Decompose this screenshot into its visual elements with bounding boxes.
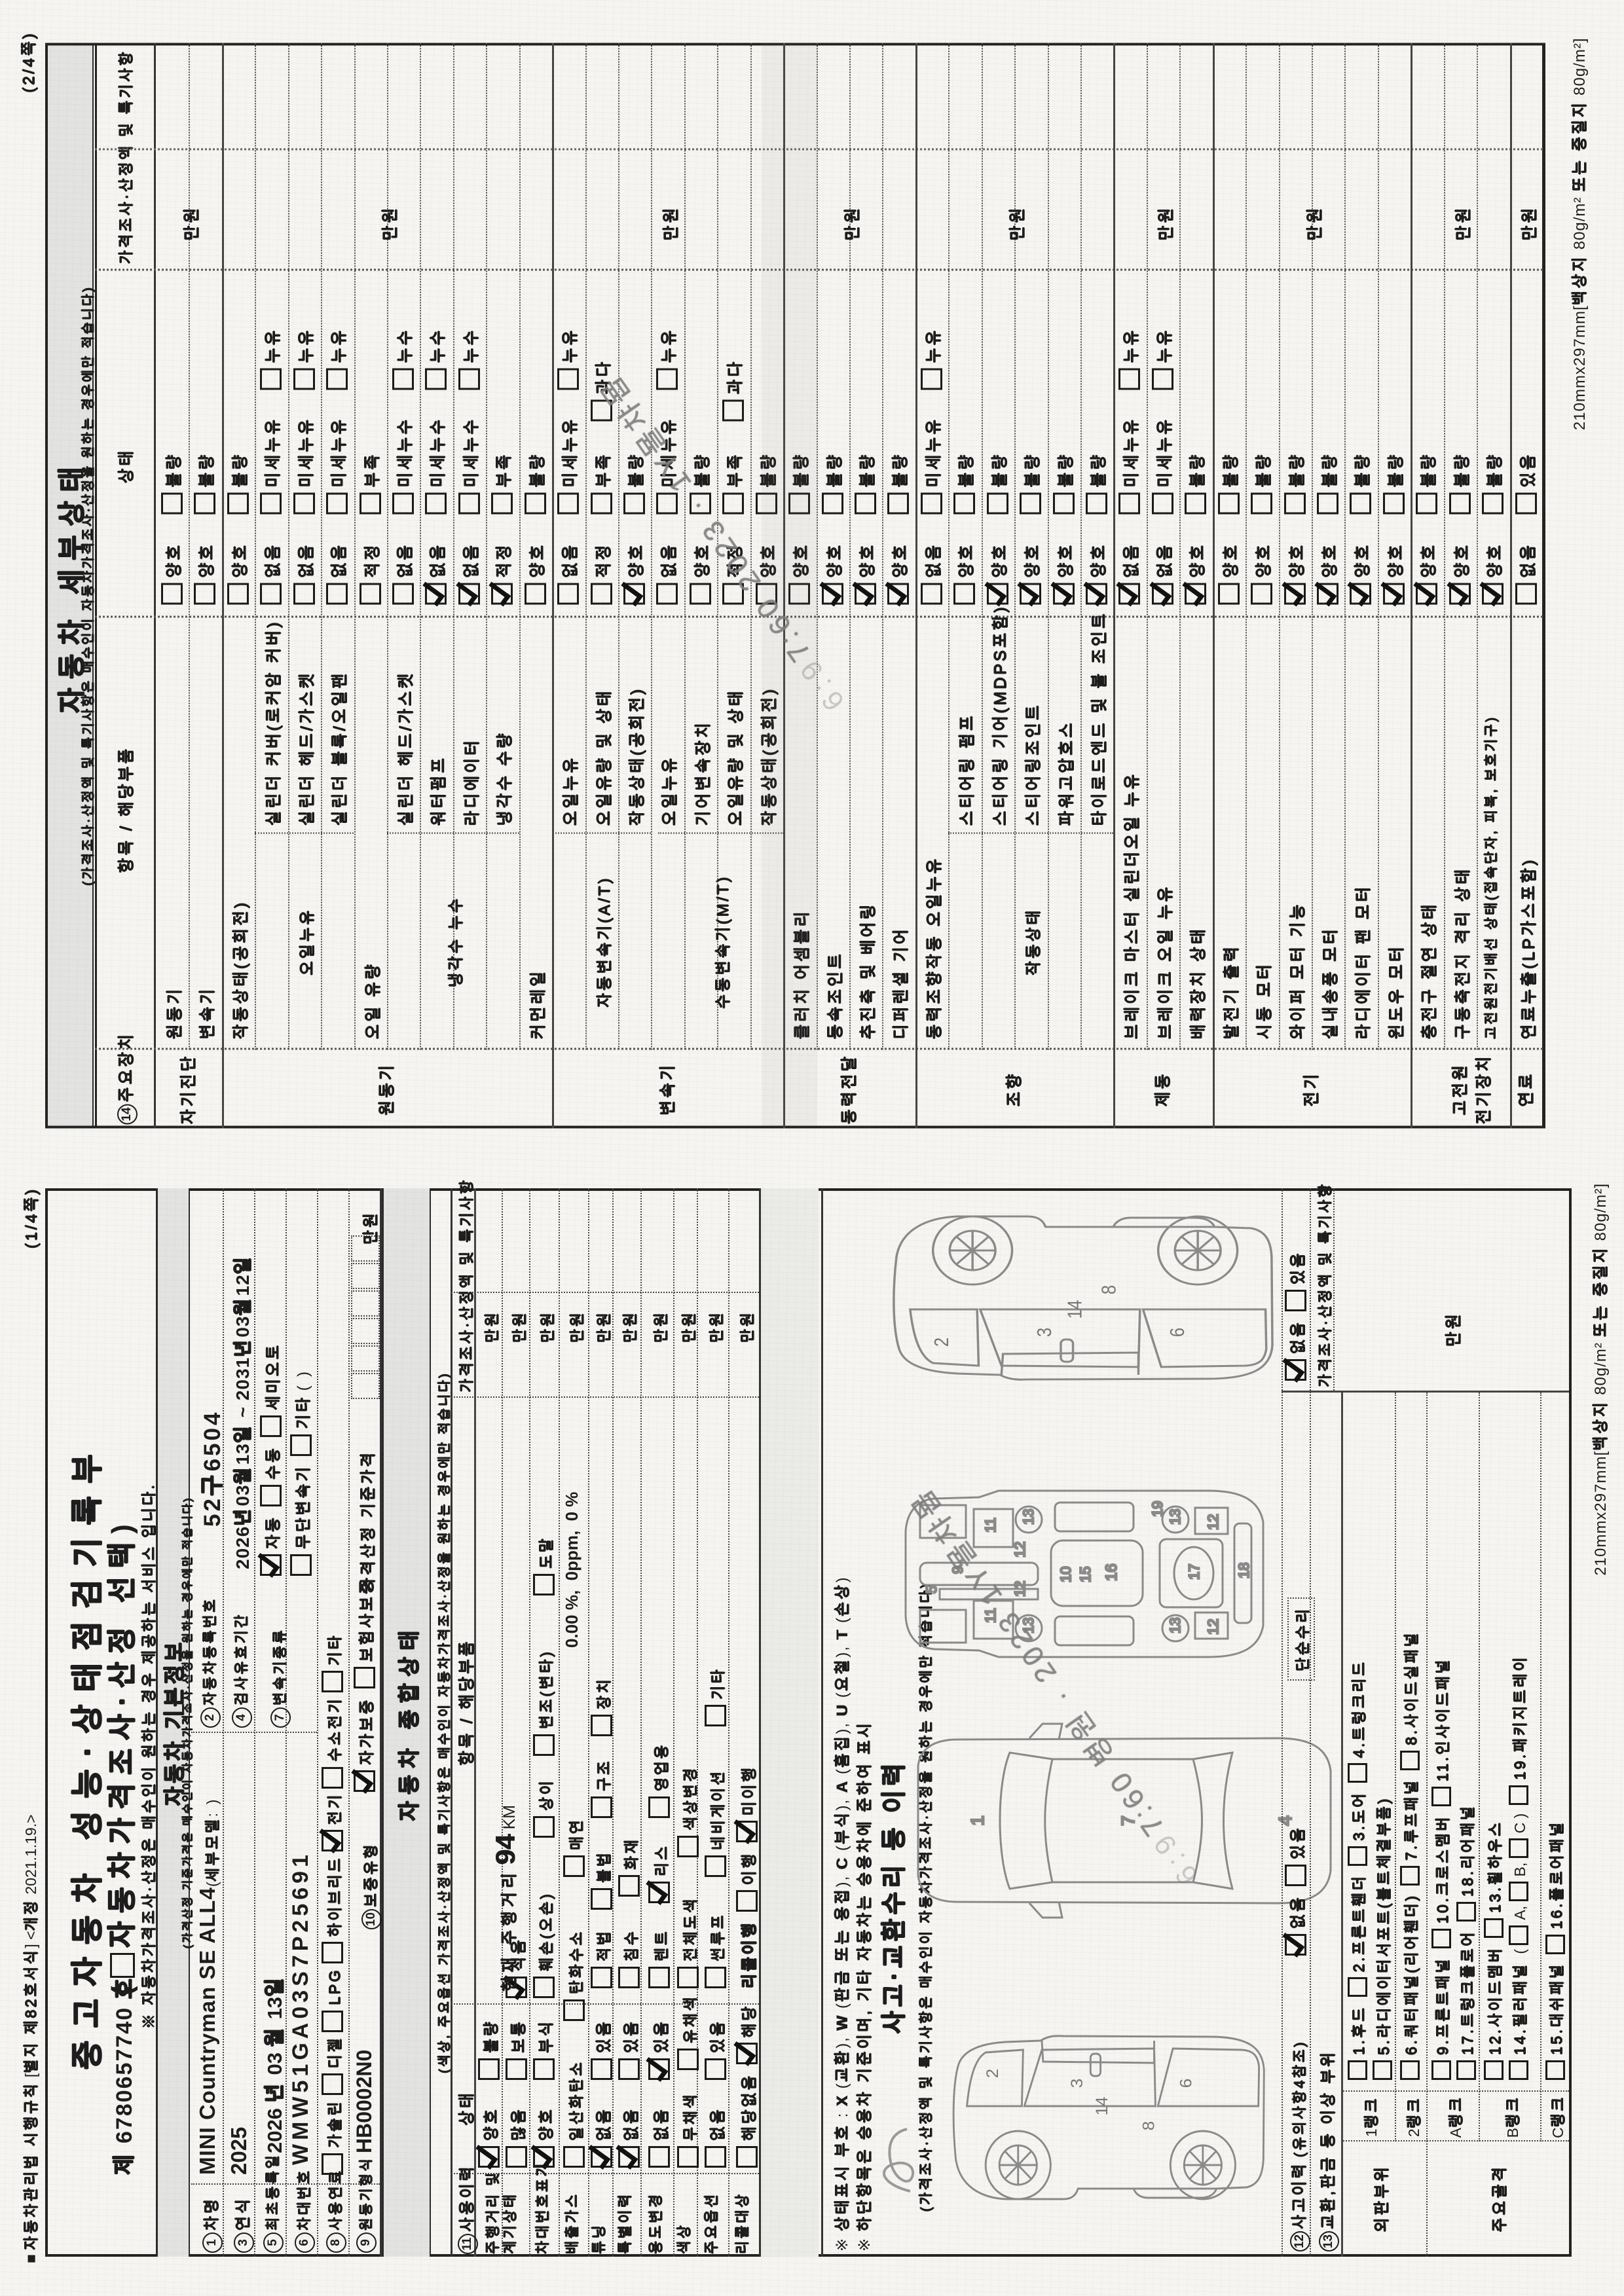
svg-text:2: 2 [984,2069,1002,2078]
svg-text:13: 13 [1167,1618,1183,1633]
svg-text:18: 18 [1236,1563,1252,1578]
svg-text:5: 5 [923,1586,940,1594]
svg-text:15: 15 [1077,1567,1094,1582]
svg-text:2: 2 [930,1338,952,1347]
svg-text:10: 10 [1058,1567,1074,1582]
svg-text:11: 11 [982,1518,999,1533]
svg-text:8: 8 [1098,1285,1120,1294]
svg-text:12: 12 [1205,1514,1221,1530]
svg-text:19: 19 [1149,1501,1166,1517]
svg-text:3: 3 [1068,2079,1086,2088]
svg-text:4: 4 [1275,1815,1295,1826]
svg-text:13: 13 [1020,1509,1037,1525]
svg-text:13: 13 [1167,1509,1183,1525]
svg-text:6: 6 [1166,1328,1188,1337]
svg-text:1: 1 [967,1815,987,1826]
svg-text:16: 16 [1103,1563,1120,1581]
svg-text:14: 14 [1094,2097,1111,2116]
svg-text:8: 8 [1140,2121,1158,2130]
svg-text:12: 12 [1205,1619,1221,1635]
svg-text:12: 12 [1012,1542,1028,1558]
svg-text:3: 3 [1033,1328,1055,1337]
svg-text:12: 12 [1012,1581,1028,1597]
svg-text:6: 6 [1177,2079,1195,2088]
svg-text:17: 17 [1186,1564,1202,1580]
svg-text:14: 14 [1063,1300,1085,1319]
